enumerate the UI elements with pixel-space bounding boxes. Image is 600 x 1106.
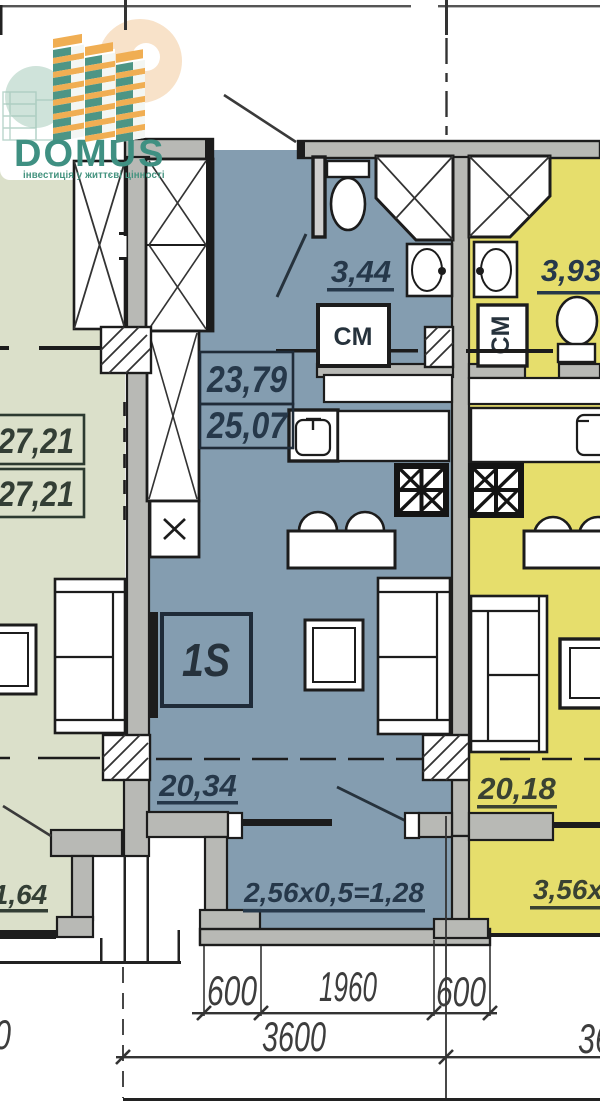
- svg-text:600: 600: [207, 967, 257, 1014]
- svg-text:3,93: 3,93: [541, 253, 600, 288]
- svg-text:CM: CM: [334, 323, 373, 351]
- svg-text:3600: 3600: [262, 1013, 326, 1060]
- svg-text:1S: 1S: [182, 634, 230, 686]
- svg-text:27,21: 27,21: [0, 475, 74, 514]
- svg-text:36: 36: [578, 1015, 600, 1062]
- svg-text:1,64: 1,64: [0, 879, 48, 910]
- svg-text:25,07: 25,07: [206, 405, 289, 446]
- svg-text:0: 0: [0, 1011, 11, 1058]
- svg-text:CM: CM: [487, 316, 515, 355]
- svg-text:20,18: 20,18: [477, 771, 556, 806]
- svg-text:1960: 1960: [319, 963, 377, 1010]
- svg-text:27,21: 27,21: [0, 422, 74, 461]
- svg-text:600: 600: [436, 968, 486, 1015]
- svg-text:DOMUS: DOMUS: [14, 133, 165, 175]
- svg-text:3,56x: 3,56x: [533, 874, 600, 905]
- svg-text:23,79: 23,79: [206, 359, 287, 400]
- svg-text:3,44: 3,44: [331, 254, 391, 289]
- svg-text:інвестиція у життєві цінності: інвестиція у життєві цінності: [23, 170, 165, 181]
- svg-text:2,56x0,5=1,28: 2,56x0,5=1,28: [243, 877, 424, 908]
- svg-text:20,34: 20,34: [158, 768, 237, 803]
